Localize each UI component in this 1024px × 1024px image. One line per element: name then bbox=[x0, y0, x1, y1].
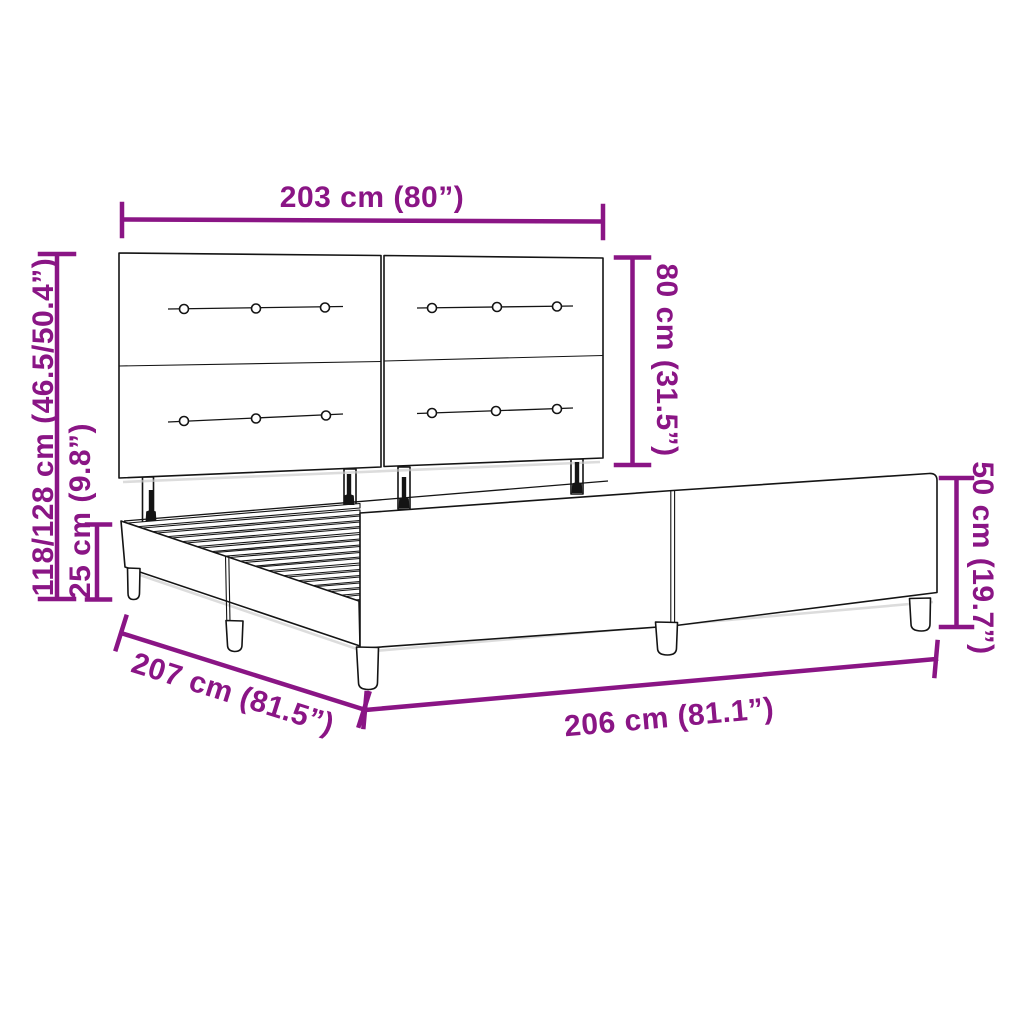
dimension-label: 25 cm (9.8”) bbox=[64, 423, 97, 599]
headboard-right-panel bbox=[384, 256, 603, 467]
dimension-side-panel-height: 50 cm (19.7”) bbox=[941, 461, 999, 654]
dimension-headboard-height: 80 cm (31.5”) bbox=[616, 258, 683, 466]
dimension-line bbox=[616, 258, 649, 466]
dimension-label: 80 cm (31.5”) bbox=[650, 263, 683, 456]
dimension-label: 206 cm (81.1”) bbox=[563, 692, 776, 744]
dimension-label: 207 cm (81.5”) bbox=[128, 647, 339, 742]
leg-panel-middle bbox=[656, 622, 678, 655]
leg-panel-right bbox=[910, 598, 931, 631]
bed-frame-drawing bbox=[119, 253, 937, 690]
dimension-headboard-width: 203 cm (80”) bbox=[122, 181, 603, 238]
dimension-label: 203 cm (80”) bbox=[280, 181, 464, 214]
dimension-label: 50 cm (19.7”) bbox=[966, 461, 999, 654]
side-panel-right bbox=[357, 473, 938, 689]
dimension-frame-length: 206 cm (81.1”) bbox=[364, 642, 938, 743]
headboard bbox=[119, 253, 603, 482]
dimension-base-height: 25 cm (9.8”) bbox=[64, 423, 110, 600]
bed-frame-dimension-diagram: 203 cm (80”) 80 cm (31.5”) 118/128 cm (4… bbox=[0, 0, 1024, 1024]
dimension-label: 118/128 cm (46.5/50.4”) bbox=[27, 258, 60, 596]
leg-front-middle bbox=[226, 621, 243, 652]
leg-corner bbox=[357, 647, 379, 690]
leg-front-left bbox=[128, 568, 141, 600]
diagram-canvas: 203 cm (80”) 80 cm (31.5”) 118/128 cm (4… bbox=[0, 0, 1024, 1024]
side-panel-face bbox=[360, 473, 937, 648]
